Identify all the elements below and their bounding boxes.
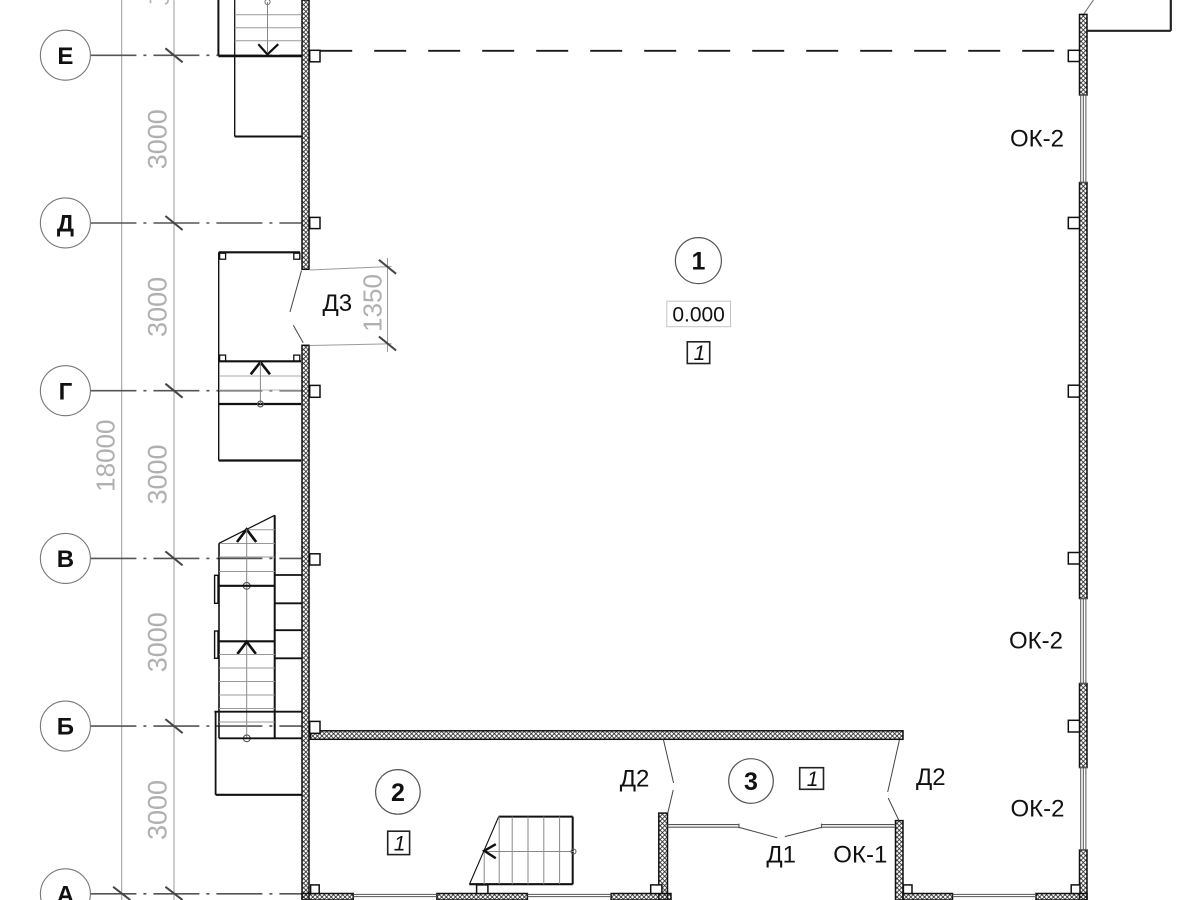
svg-text:3000: 3000 bbox=[143, 277, 173, 337]
svg-text:1350: 1350 bbox=[357, 274, 387, 332]
svg-text:3000: 3000 bbox=[143, 780, 173, 840]
svg-text:1: 1 bbox=[807, 768, 819, 791]
svg-text:А: А bbox=[57, 881, 74, 900]
svg-text:В: В bbox=[57, 546, 74, 573]
svg-text:ОК-2: ОК-2 bbox=[1011, 796, 1065, 823]
svg-text:ОК-2: ОК-2 bbox=[1009, 628, 1063, 655]
svg-text:1: 1 bbox=[691, 248, 705, 276]
svg-text:ОК-1: ОК-1 bbox=[833, 842, 887, 869]
svg-text:Д2: Д2 bbox=[916, 764, 946, 791]
svg-text:3000: 3000 bbox=[143, 109, 173, 169]
svg-text:3000: 3000 bbox=[143, 612, 173, 672]
svg-text:Д: Д bbox=[57, 211, 74, 238]
svg-text:3: 3 bbox=[744, 768, 758, 796]
svg-text:2: 2 bbox=[391, 779, 405, 807]
svg-text:Д2: Д2 bbox=[620, 766, 650, 793]
svg-text:1: 1 bbox=[694, 342, 706, 365]
svg-text:0.000: 0.000 bbox=[672, 304, 725, 327]
svg-text:Б: Б bbox=[57, 714, 74, 741]
svg-text:ОК-2: ОК-2 bbox=[1010, 126, 1064, 153]
svg-text:Г: Г bbox=[59, 378, 73, 405]
svg-text:1: 1 bbox=[394, 833, 406, 856]
svg-text:3000: 3000 bbox=[143, 444, 173, 504]
svg-text:Д1: Д1 bbox=[766, 842, 796, 869]
svg-text:Д3: Д3 bbox=[322, 290, 352, 317]
svg-text:Е: Е bbox=[57, 43, 73, 70]
svg-text:18000: 18000 bbox=[90, 420, 120, 492]
